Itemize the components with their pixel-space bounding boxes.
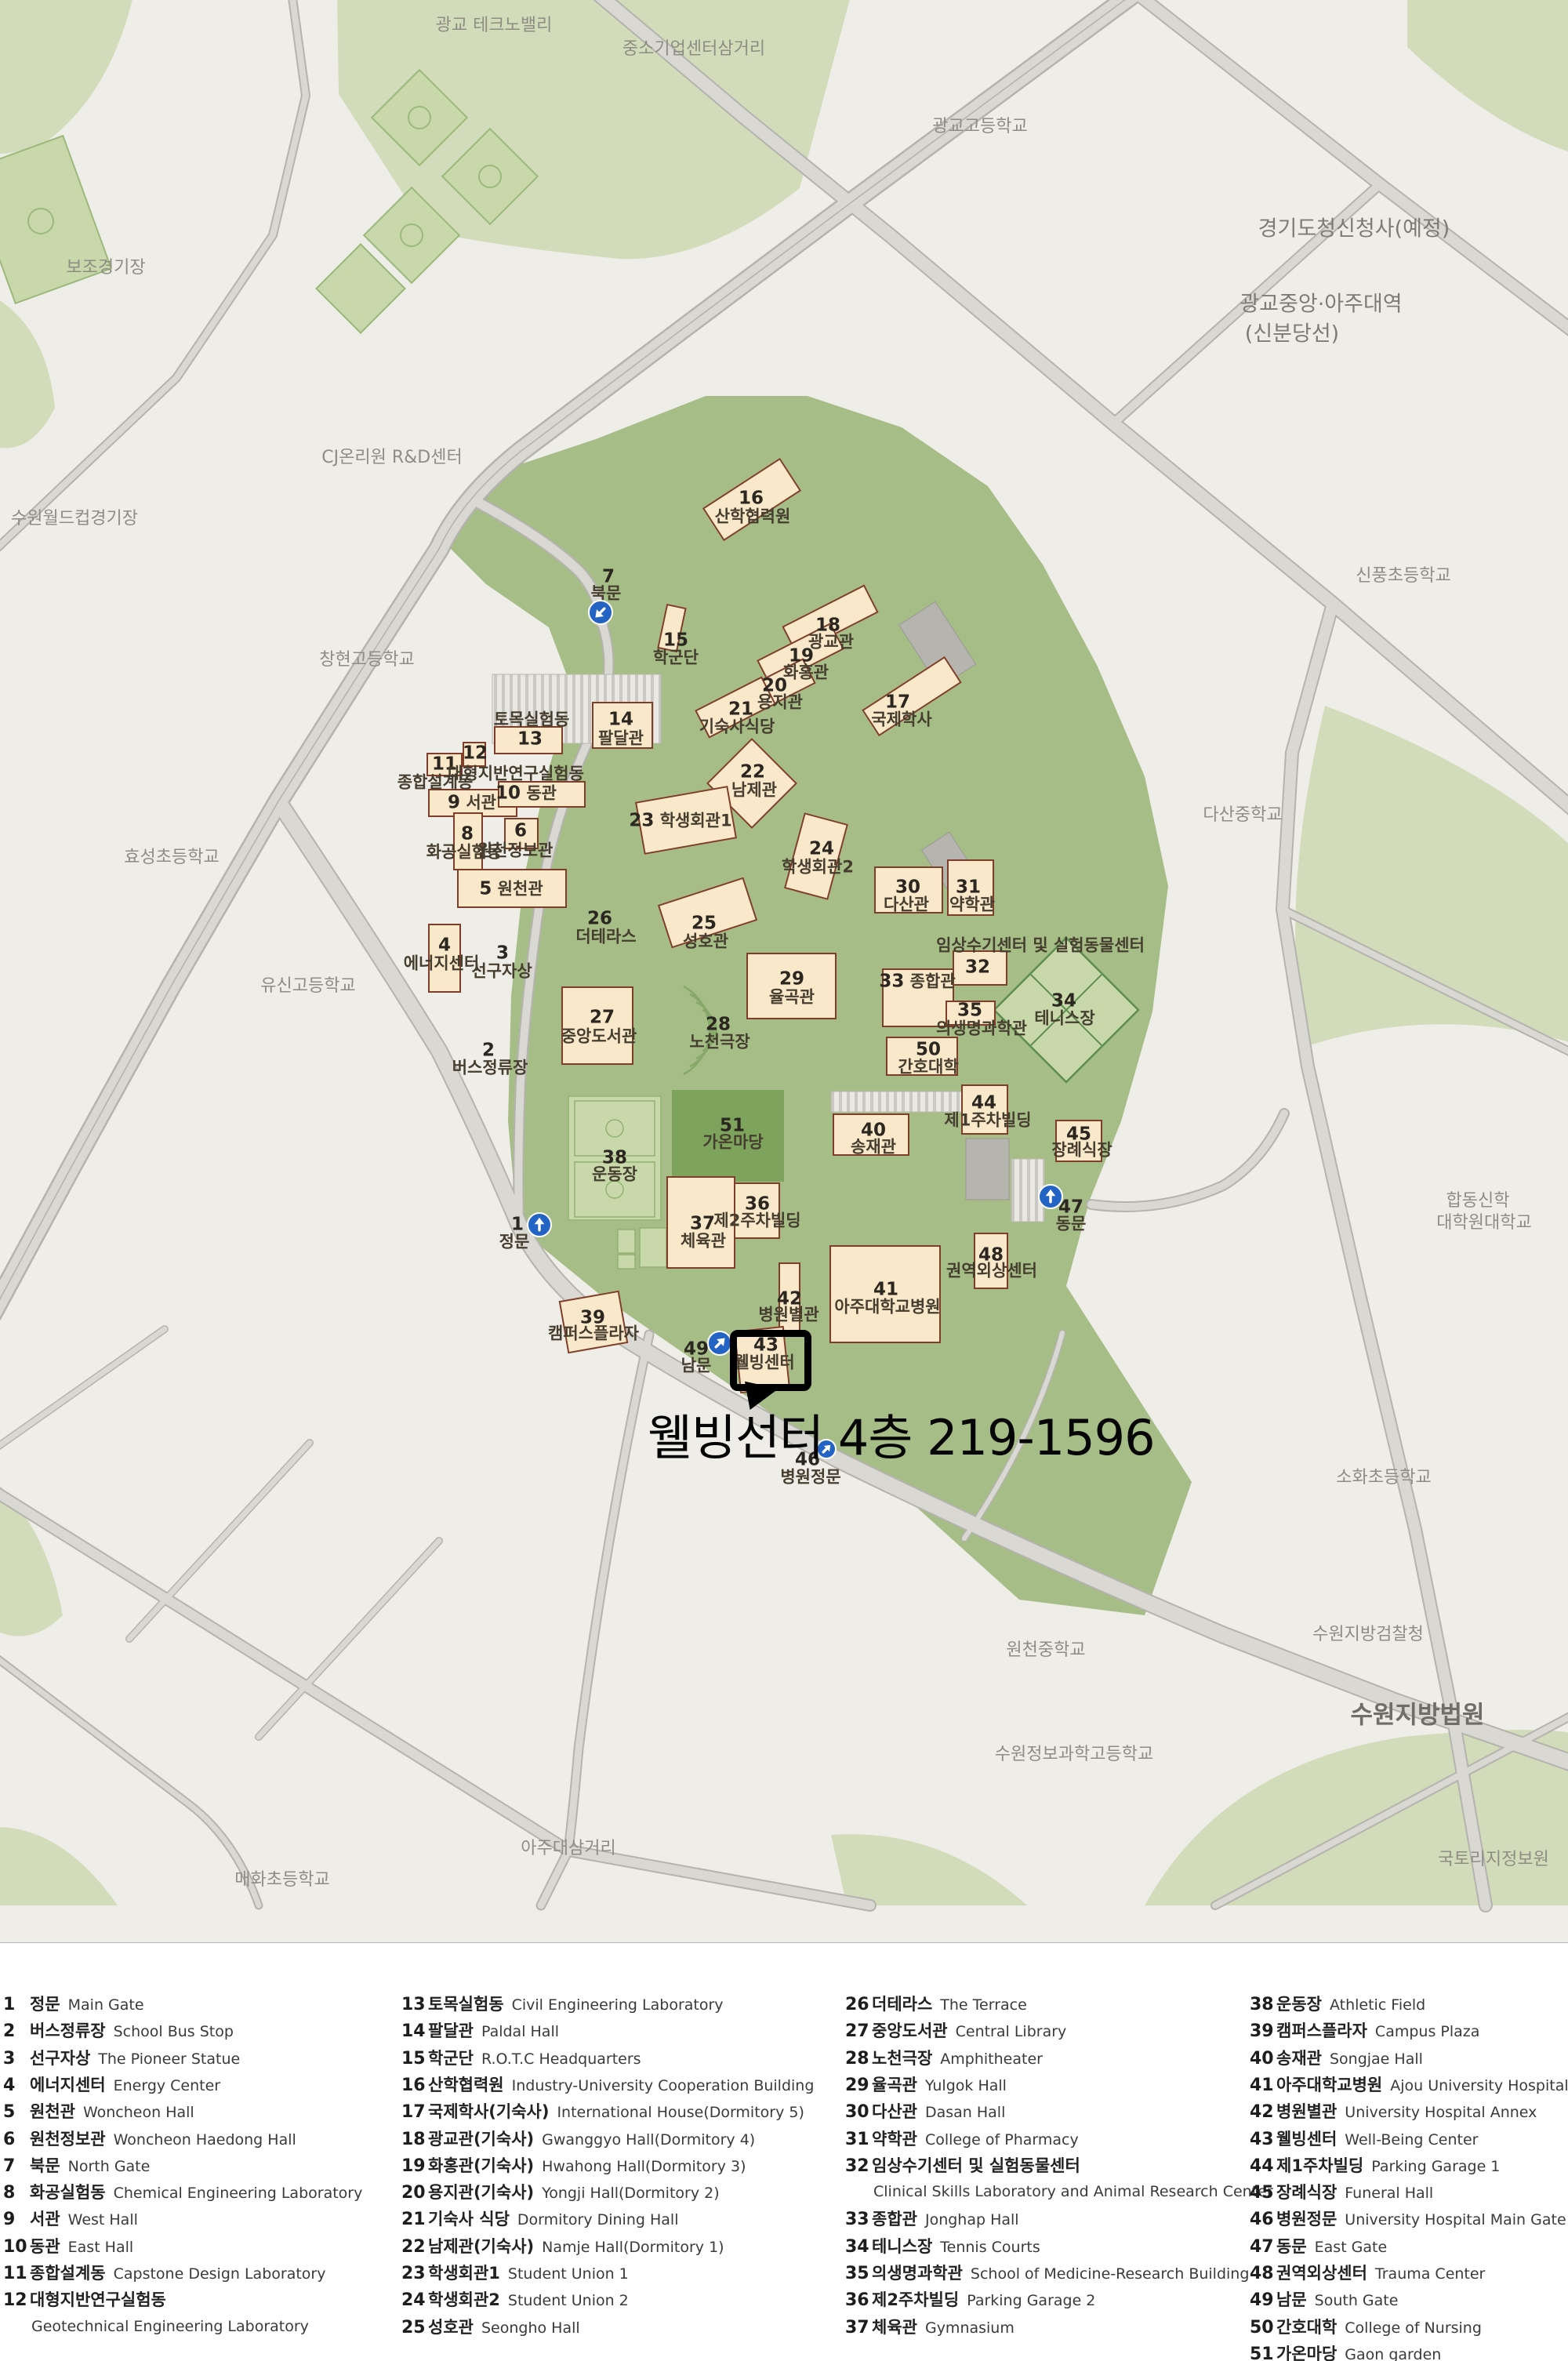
offcampus-label-21: 아주대삼거리 xyxy=(521,1840,615,1858)
legend-korean-25: 성호관 xyxy=(428,2319,474,2336)
offcampus-label-6: 보조경기장 xyxy=(66,260,145,277)
legend-korean-8: 화공실험동 xyxy=(30,2185,106,2201)
legend-item-12: 12대형지반연구실험동 xyxy=(3,2292,174,2309)
poi-name-3: 선구자상 xyxy=(471,964,532,980)
gate-arrow-icon xyxy=(586,598,615,627)
legend-korean-29: 율곡관 xyxy=(872,2077,917,2094)
legend-item-18: 18광교관(기숙사)Gwanggyo Hall(Dormitory 4) xyxy=(401,2131,755,2149)
legend-english-21: Dormitory Dining Hall xyxy=(517,2213,679,2228)
poi-name-2: 버스정류장 xyxy=(452,1060,528,1077)
poi-name-30: 다산관 xyxy=(884,897,929,914)
legend-number-47: 47 xyxy=(1250,2239,1276,2256)
legend-english-3: The Pioneer Statue xyxy=(98,2052,240,2067)
legend-english-35: School of Medicine-Research Building xyxy=(971,2267,1249,2282)
poi-number-44: 44 xyxy=(971,1095,996,1113)
poi-name-19: 화홍관 xyxy=(783,665,829,681)
legend-item-44: 44제1주차빌딩Parking Garage 1 xyxy=(1250,2158,1500,2175)
gate-arrow-east-gate xyxy=(1036,1182,1065,1214)
legend-item-50: 50간호대학College of Nursing xyxy=(1250,2319,1482,2337)
gate-arrow-icon xyxy=(1036,1182,1065,1211)
poi-name-39: 캠퍼스플라자 xyxy=(548,1326,639,1342)
legend-korean-9: 서관 xyxy=(30,2211,60,2228)
legend-english-33: Jonghap Hall xyxy=(925,2213,1019,2228)
poi-name-27: 중앙도서관 xyxy=(561,1029,637,1045)
legend-korean-28: 노천극장 xyxy=(872,2050,932,2067)
legend-english-cont-32: Clinical Skills Laboratory and Animal Re… xyxy=(873,2185,1273,2199)
legend-item-13: 13토목실험동Civil Engineering Laboratory xyxy=(401,1996,724,2014)
legend-item-38: 38운동장Athletic Field xyxy=(1250,1996,1425,2014)
legend-korean-51: 가온마당 xyxy=(1276,2346,1337,2361)
legend-number-32: 32 xyxy=(845,2158,872,2175)
legend-korean-39: 캠퍼스플라자 xyxy=(1276,2023,1367,2040)
legend-english-15: R.O.T.C Headquarters xyxy=(481,2052,641,2067)
legend-item-51: 51가온마당Gaon garden xyxy=(1250,2346,1441,2361)
poi-name-35: 의생명과학관 xyxy=(936,1021,1027,1037)
legend-number-11: 11 xyxy=(3,2265,30,2283)
poi-number-24: 24 xyxy=(809,841,834,859)
legend-english-31: College of Pharmacy xyxy=(925,2133,1079,2148)
poi-name-47: 동문 xyxy=(1056,1216,1087,1233)
poi-33: 33 종합관 xyxy=(879,973,955,991)
legend-korean-4: 에너지센터 xyxy=(30,2077,106,2094)
legend-english-6: Woncheon Haedong Hall xyxy=(114,2133,296,2148)
offcampus-label-10: 창현고등학교 xyxy=(319,652,414,669)
poi-name-8: 화공실험동 xyxy=(426,845,503,861)
legend-english-40: Songjae Hall xyxy=(1330,2052,1423,2067)
legend-number-2: 2 xyxy=(3,2023,30,2040)
legend-english-24: Student Union 2 xyxy=(508,2294,629,2308)
poi-10: 10 동관 xyxy=(495,785,557,803)
legend-item-34: 34테니스장Tennis Courts xyxy=(845,2239,1040,2256)
legend-item-7: 7북문North Gate xyxy=(3,2158,150,2175)
legend-number-12: 12 xyxy=(3,2292,30,2309)
legend-english-34: Tennis Courts xyxy=(940,2240,1040,2255)
poi-23: 23 학생회관1 xyxy=(629,812,731,830)
legend-number-27: 27 xyxy=(845,2023,872,2040)
legend-item-20: 20용지관(기숙사)Yongji Hall(Dormitory 2) xyxy=(401,2185,720,2202)
legend-item-23: 23학생회관1Student Union 1 xyxy=(401,2265,629,2283)
poi-number-41: 41 xyxy=(873,1281,898,1299)
legend-korean-44: 제1주차빌딩 xyxy=(1276,2158,1363,2174)
offcampus-label-8: CJ온리원 R&D센터 xyxy=(321,449,462,467)
poi-number-16: 16 xyxy=(739,490,764,508)
gate-arrow-north-gate xyxy=(586,598,615,630)
legend-item-9: 9서관West Hall xyxy=(3,2211,138,2228)
legend-korean-6: 원천정보관 xyxy=(30,2131,106,2148)
legend-korean-41: 아주대학교병원 xyxy=(1276,2077,1382,2094)
legend-number-14: 14 xyxy=(401,2023,428,2040)
poi-name-29: 율곡관 xyxy=(769,990,815,1006)
legend-korean-46: 병원정문 xyxy=(1276,2211,1337,2228)
legend-number-6: 6 xyxy=(3,2131,30,2149)
legend-item-31: 31약학관College of Pharmacy xyxy=(845,2131,1079,2149)
poi-number-15: 15 xyxy=(663,632,688,650)
legend-english-46: University Hospital Main Gate xyxy=(1345,2213,1566,2228)
legend-english-42: University Hospital Annex xyxy=(1345,2105,1537,2120)
poi-number-13: 13 xyxy=(517,731,543,749)
legend-number-17: 17 xyxy=(401,2104,428,2121)
legend-english-44: Parking Garage 1 xyxy=(1371,2159,1500,2174)
poi-name-46: 병원정문 xyxy=(780,1469,840,1486)
legend-english-17: International House(Dormitory 5) xyxy=(557,2105,804,2120)
poi-name-17: 국제학사 xyxy=(871,712,931,728)
legend-english-43: Well-Being Center xyxy=(1345,2133,1478,2148)
legend-item-49: 49남문South Gate xyxy=(1250,2292,1398,2309)
legend-korean-26: 더테라스 xyxy=(872,1996,932,2013)
poi-number-26: 26 xyxy=(587,910,612,928)
poi-name-25: 성호관 xyxy=(683,934,728,950)
legend-english-37: Gymnasium xyxy=(925,2321,1014,2336)
legend-english-5: Woncheon Hall xyxy=(83,2105,194,2120)
legend-korean-48: 권역외상센터 xyxy=(1276,2265,1367,2282)
legend-number-21: 21 xyxy=(401,2211,428,2228)
offcampus-label-0: 광교 테크노밸리 xyxy=(436,17,553,35)
legend-number-38: 38 xyxy=(1250,1996,1276,2014)
legend-korean-21: 기숙사 식당 xyxy=(428,2211,510,2228)
legend-item-26: 26더테라스The Terrace xyxy=(845,1996,1027,2014)
poi-name-24: 학생회관2 xyxy=(782,859,854,876)
legend-item-29: 29율곡관Yulgok Hall xyxy=(845,2077,1007,2094)
legend-korean-27: 중앙도서관 xyxy=(872,2023,948,2040)
poi-number-9: 9 xyxy=(448,793,460,813)
legend-item-27: 27중앙도서관Central Library xyxy=(845,2023,1066,2040)
offcampus-label-16: 소화초등학교 xyxy=(1336,1469,1431,1487)
poi-number-12: 12 xyxy=(463,745,488,763)
legend-item-36: 36제2주차빌딩Parking Garage 2 xyxy=(845,2292,1095,2309)
legend-korean-22: 남제관(기숙사) xyxy=(428,2239,534,2255)
offcampus-label-13: 유신고등학교 xyxy=(260,978,355,995)
poi-number-14: 14 xyxy=(608,711,633,729)
poi-number-21: 21 xyxy=(728,701,753,719)
poi-name-15: 학군단 xyxy=(653,650,699,667)
legend-number-34: 34 xyxy=(845,2239,872,2256)
legend-english-20: Yongji Hall(Dormitory 2) xyxy=(542,2186,720,2201)
poi-name-34: 테니스장 xyxy=(1034,1011,1094,1027)
poi-number-30: 30 xyxy=(895,879,920,897)
legend-item-32: 32임상수기센터 및 실험동물센터 xyxy=(845,2158,1088,2175)
legend-number-30: 30 xyxy=(845,2104,872,2121)
legend-korean-50: 간호대학 xyxy=(1276,2319,1337,2336)
legend-number-36: 36 xyxy=(845,2292,872,2309)
legend-number-43: 43 xyxy=(1250,2131,1276,2149)
legend-english-27: Central Library xyxy=(956,2025,1067,2040)
legend-korean-18: 광교관(기숙사) xyxy=(428,2131,534,2148)
poi-number-8: 8 xyxy=(461,826,474,844)
offcampus-label-2: 광교고등학교 xyxy=(932,118,1027,136)
offcampus-label-19: 원천중학교 xyxy=(1006,1642,1085,1659)
legend-english-19: Hwahong Hall(Dormitory 3) xyxy=(542,2159,746,2174)
legend-english-8: Chemical Engineering Laboratory xyxy=(114,2186,363,2201)
legend-item-6: 6원천정보관Woncheon Haedong Hall xyxy=(3,2131,296,2149)
legend-item-8: 8화공실험동Chemical Engineering Laboratory xyxy=(3,2185,362,2202)
poi-name-40: 송재관 xyxy=(851,1139,896,1156)
legend-english-7: North Gate xyxy=(68,2159,151,2174)
poi-name-22: 남제관 xyxy=(731,783,777,799)
legend-number-40: 40 xyxy=(1250,2050,1276,2068)
poi-number-4: 4 xyxy=(438,937,451,955)
poi-name-31: 약학관 xyxy=(949,897,995,914)
legend-english-9: West Hall xyxy=(68,2213,138,2228)
offcampus-label-17: 수원지방검찰청 xyxy=(1312,1626,1424,1644)
poi-name-20: 용지관 xyxy=(757,695,803,711)
legend-korean-38: 운동장 xyxy=(1276,1996,1322,2013)
poi-name-42: 병원별관 xyxy=(758,1307,818,1324)
legend-korean-11: 종합설계동 xyxy=(30,2265,106,2282)
legend-number-26: 26 xyxy=(845,1996,872,2014)
legend-item-22: 22남제관(기숙사)Namje Hall(Dormitory 1) xyxy=(401,2239,724,2256)
annotation-text: 웰빙선터 4층 219-1596 xyxy=(648,1411,1155,1465)
legend-item-24: 24학생회관2Student Union 2 xyxy=(401,2292,629,2309)
legend-number-49: 49 xyxy=(1250,2292,1276,2309)
poi-name-28: 노천극장 xyxy=(689,1034,750,1051)
legend-english-22: Namje Hall(Dormitory 1) xyxy=(542,2240,724,2255)
poi-name-4: 에너지센터 xyxy=(404,956,480,972)
legend-item-33: 33종합관Jonghap Hall xyxy=(845,2211,1019,2228)
poi-number-3: 3 xyxy=(496,945,509,963)
gate-arrow-main-gate xyxy=(525,1211,554,1242)
gate-arrow-icon xyxy=(525,1211,554,1239)
legend-item-2: 2버스정류장School Bus Stop xyxy=(3,2023,234,2040)
offcampus-label-22: 매화초등학교 xyxy=(234,1872,329,1889)
legend-number-8: 8 xyxy=(3,2185,30,2202)
legend-korean-32: 임상수기센터 및 실험동물센터 xyxy=(872,2158,1080,2174)
legend-number-45: 45 xyxy=(1250,2185,1276,2202)
legend-item-21: 21기숙사 식당Dormitory Dining Hall xyxy=(401,2211,678,2228)
legend-korean-5: 원천관 xyxy=(30,2104,75,2120)
legend-item-19: 19화홍관(기숙사)Hwahong Hall(Dormitory 3) xyxy=(401,2158,746,2175)
legend-english-48: Trauma Center xyxy=(1375,2267,1485,2282)
legend-english-36: Parking Garage 2 xyxy=(967,2294,1095,2308)
legend-number-24: 24 xyxy=(401,2292,428,2309)
legend-number-28: 28 xyxy=(845,2050,872,2068)
poi-number-32: 32 xyxy=(965,959,990,977)
legend-english-4: Energy Center xyxy=(114,2079,221,2094)
offcampus-label-5: (신분당선) xyxy=(1245,324,1339,345)
legend-english-13: Civil Engineering Laboratory xyxy=(512,1998,724,2013)
legend-number-25: 25 xyxy=(401,2319,428,2337)
legend-korean-43: 웰빙센터 xyxy=(1276,2131,1337,2148)
legend-number-50: 50 xyxy=(1250,2319,1276,2337)
legend-number-20: 20 xyxy=(401,2185,428,2202)
legend-item-42: 42병원별관University Hospital Annex xyxy=(1250,2104,1537,2121)
legend-english-18: Gwanggyo Hall(Dormitory 4) xyxy=(542,2133,755,2148)
poi-number-25: 25 xyxy=(691,915,717,933)
legend-english-1: Main Gate xyxy=(68,1998,144,2013)
legend-item-40: 40송재관Songjae Hall xyxy=(1250,2050,1423,2068)
poi-number-2: 2 xyxy=(482,1042,495,1060)
legend-number-19: 19 xyxy=(401,2158,428,2175)
offcampus-label-23: 국토리지정보원 xyxy=(1438,1851,1549,1869)
poi-5: 5 원천관 xyxy=(479,881,543,899)
legend-number-33: 33 xyxy=(845,2211,872,2228)
legend-english-41: Ajou University Hospital xyxy=(1390,2079,1568,2094)
legend-korean-49: 남문 xyxy=(1276,2292,1307,2308)
legend-item-28: 28노천극장Amphitheater xyxy=(845,2050,1043,2068)
legend-item-1: 1정문Main Gate xyxy=(3,1996,144,2014)
legend-number-1: 1 xyxy=(3,1996,30,2014)
poi-number-33: 33 xyxy=(879,972,904,992)
legend-english-30: Dasan Hall xyxy=(925,2105,1005,2120)
legend-english-28: Amphitheater xyxy=(940,2052,1043,2067)
legend-number-15: 15 xyxy=(401,2050,428,2068)
legend-item-35: 35의생명과학관School of Medicine-Research Buil… xyxy=(845,2265,1249,2283)
legend-number-16: 16 xyxy=(401,2077,428,2094)
legend-english-38: Athletic Field xyxy=(1330,1998,1425,2013)
legend-number-23: 23 xyxy=(401,2265,428,2283)
poi-name-12: 대형지반연구실험동 xyxy=(448,766,584,783)
legend-number-44: 44 xyxy=(1250,2158,1276,2175)
legend-english-50: College of Nursing xyxy=(1345,2321,1482,2336)
offcampus-label-12: 효성초등학교 xyxy=(124,849,219,866)
legend-korean-24: 학생회관2 xyxy=(428,2292,500,2308)
poi-number-28: 28 xyxy=(706,1016,731,1034)
legend-item-48: 48권역외상센터Trauma Center xyxy=(1250,2265,1485,2283)
legend-item-4: 4에너지센터Energy Center xyxy=(3,2077,220,2094)
legend-english-11: Capstone Design Laboratory xyxy=(114,2267,326,2282)
legend-number-31: 31 xyxy=(845,2131,872,2149)
legend-separator xyxy=(0,1942,1568,1943)
legend-number-35: 35 xyxy=(845,2265,872,2283)
legend-english-29: Yulgok Hall xyxy=(925,2079,1007,2094)
poi-number-31: 31 xyxy=(956,879,981,897)
poi-number-34: 34 xyxy=(1051,993,1076,1011)
legend-english-51: Gaon garden xyxy=(1345,2348,1441,2361)
legend-korean-30: 다산관 xyxy=(872,2104,917,2120)
legend-korean-31: 약학관 xyxy=(872,2131,917,2148)
legend-korean-3: 선구자상 xyxy=(30,2050,90,2067)
legend-item-5: 5원천관Woncheon Hall xyxy=(3,2104,194,2121)
offcampus-label-9: 신풍초등학교 xyxy=(1356,568,1450,585)
legend-korean-34: 테니스장 xyxy=(872,2239,932,2255)
poi-name-21: 기숙사식당 xyxy=(699,719,775,736)
poi-name-45: 장례식장 xyxy=(1051,1142,1112,1159)
offcampus-label-14: 합동신학 xyxy=(1446,1193,1510,1210)
poi-name-41: 아주대학교병원 xyxy=(834,1299,940,1316)
legend-korean-15: 학군단 xyxy=(428,2050,474,2067)
legend-number-7: 7 xyxy=(3,2158,30,2175)
map-extra-label-0: 임상수기센터 및 실험동물센터 xyxy=(936,938,1145,954)
poi-name-14: 팔달관 xyxy=(598,731,644,747)
legend-number-10: 10 xyxy=(3,2239,30,2256)
legend-korean-20: 용지관(기숙사) xyxy=(428,2185,534,2201)
poi-number-1: 1 xyxy=(511,1216,524,1234)
legend-korean-2: 버스정류장 xyxy=(30,2023,106,2040)
legend-korean-33: 종합관 xyxy=(872,2211,917,2228)
poi-name-13: 토목실험동 xyxy=(494,712,570,728)
legend-number-5: 5 xyxy=(3,2104,30,2121)
poi-name-36: 제2주차빌딩 xyxy=(713,1213,800,1230)
poi-name-18: 광교관 xyxy=(808,634,854,651)
legend-english-16: Industry-University Cooperation Building xyxy=(512,2079,815,2094)
legend-number-29: 29 xyxy=(845,2077,872,2094)
legend-item-11: 11종합설계동Capstone Design Laboratory xyxy=(3,2265,325,2283)
legend-korean-40: 송재관 xyxy=(1276,2050,1322,2067)
offcampus-label-1: 중소기업센터삼거리 xyxy=(622,41,765,58)
legend-korean-23: 학생회관1 xyxy=(428,2265,500,2282)
campus-map-page: 1정문2버스정류장3선구자상4에너지센터5 원천관6원천정보관7북문8화공실험동… xyxy=(0,0,1568,2361)
poi-name-16: 산학협력원 xyxy=(715,509,791,525)
highlight-callout-box xyxy=(730,1330,811,1391)
legend-number-51: 51 xyxy=(1250,2346,1276,2361)
legend-english-14: Paldal Hall xyxy=(481,2025,559,2040)
legend-item-30: 30다산관Dasan Hall xyxy=(845,2104,1005,2121)
legend-korean-42: 병원별관 xyxy=(1276,2104,1337,2120)
poi-number-10: 10 xyxy=(495,783,521,804)
legend-item-3: 3선구자상The Pioneer Statue xyxy=(3,2050,240,2068)
legend-item-47: 47동문East Gate xyxy=(1250,2239,1387,2256)
legend-korean-13: 토목실험동 xyxy=(428,1996,504,2013)
legend-number-18: 18 xyxy=(401,2131,428,2149)
poi-number-35: 35 xyxy=(957,1002,982,1020)
offcampus-label-3: 경기도청신청사(예정) xyxy=(1258,219,1450,240)
legend-number-42: 42 xyxy=(1250,2104,1276,2121)
poi-number-22: 22 xyxy=(740,764,765,782)
legend-korean-37: 체육관 xyxy=(872,2319,917,2336)
poi-number-29: 29 xyxy=(779,971,804,989)
legend-korean-7: 북문 xyxy=(30,2158,60,2174)
legend-korean-19: 화홍관(기숙사) xyxy=(428,2158,534,2174)
poi-number-37: 37 xyxy=(690,1215,715,1233)
poi-number-5: 5 xyxy=(479,879,492,899)
legend-item-41: 41아주대학교병원Ajou University Hospital xyxy=(1250,2077,1568,2094)
legend-english-49: South Gate xyxy=(1315,2294,1399,2308)
poi-9: 9 서관 xyxy=(448,794,496,812)
legend-number-37: 37 xyxy=(845,2319,872,2337)
legend-item-25: 25성호관Seongho Hall xyxy=(401,2319,580,2337)
legend-number-39: 39 xyxy=(1250,2023,1276,2040)
poi-number-17: 17 xyxy=(885,694,910,712)
poi-name-50: 간호대학 xyxy=(898,1059,958,1076)
legend-english-cont-12: Geotechnical Engineering Laboratory xyxy=(31,2319,309,2334)
legend-item-45: 45장례식장Funeral Hall xyxy=(1250,2185,1433,2202)
legend-item-46: 46병원정문University Hospital Main Gate xyxy=(1250,2211,1566,2228)
legend-english-26: The Terrace xyxy=(940,1998,1027,2013)
legend-item-17: 17국제학사(기숙사)International House(Dormitory… xyxy=(401,2104,804,2121)
legend-english-39: Campus Plaza xyxy=(1375,2025,1479,2040)
legend-item-14: 14팔달관Paldal Hall xyxy=(401,2023,559,2040)
legend-number-41: 41 xyxy=(1250,2077,1276,2094)
offcampus-label-18: 수원지방법원 xyxy=(1350,1704,1484,1728)
legend-number-4: 4 xyxy=(3,2077,30,2094)
legend-number-48: 48 xyxy=(1250,2265,1276,2283)
legend-item-37: 37체육관Gymnasium xyxy=(845,2319,1014,2337)
legend-number-3: 3 xyxy=(3,2050,30,2068)
legend-english-45: Funeral Hall xyxy=(1345,2186,1433,2201)
legend-item-16: 16산학협력원Industry-University Cooperation B… xyxy=(401,2077,814,2094)
legend-english-23: Student Union 1 xyxy=(508,2267,629,2282)
legend-english-25: Seongho Hall xyxy=(481,2321,580,2336)
poi-name-51: 가온마당 xyxy=(702,1135,763,1151)
legend-item-10: 10동관East Hall xyxy=(3,2239,133,2256)
legend-korean-47: 동문 xyxy=(1276,2239,1307,2255)
legend-item-15: 15학군단R.O.T.C Headquarters xyxy=(401,2050,641,2068)
offcampus-label-20: 수원정보과학고등학교 xyxy=(995,1746,1153,1763)
legend-korean-35: 의생명과학관 xyxy=(872,2265,963,2282)
legend-item-39: 39캠퍼스플라자Campus Plaza xyxy=(1250,2023,1479,2040)
poi-name-26: 더테라스 xyxy=(575,929,636,946)
legend-number-13: 13 xyxy=(401,1996,428,2014)
legend-korean-45: 장례식장 xyxy=(1276,2185,1337,2201)
poi-name-37: 체육관 xyxy=(681,1233,726,1250)
offcampus-label-11: 다산중학교 xyxy=(1203,807,1282,824)
offcampus-label-15: 대학원대학교 xyxy=(1436,1215,1531,1232)
poi-number-6: 6 xyxy=(514,823,527,841)
legend-item-43: 43웰빙센터Well-Being Center xyxy=(1250,2131,1478,2149)
legend-korean-1: 정문 xyxy=(30,1996,60,2013)
legend-english-2: School Bus Stop xyxy=(114,2025,234,2040)
poi-number-50: 50 xyxy=(916,1041,941,1059)
poi-name-48: 권역외상센터 xyxy=(946,1263,1037,1280)
